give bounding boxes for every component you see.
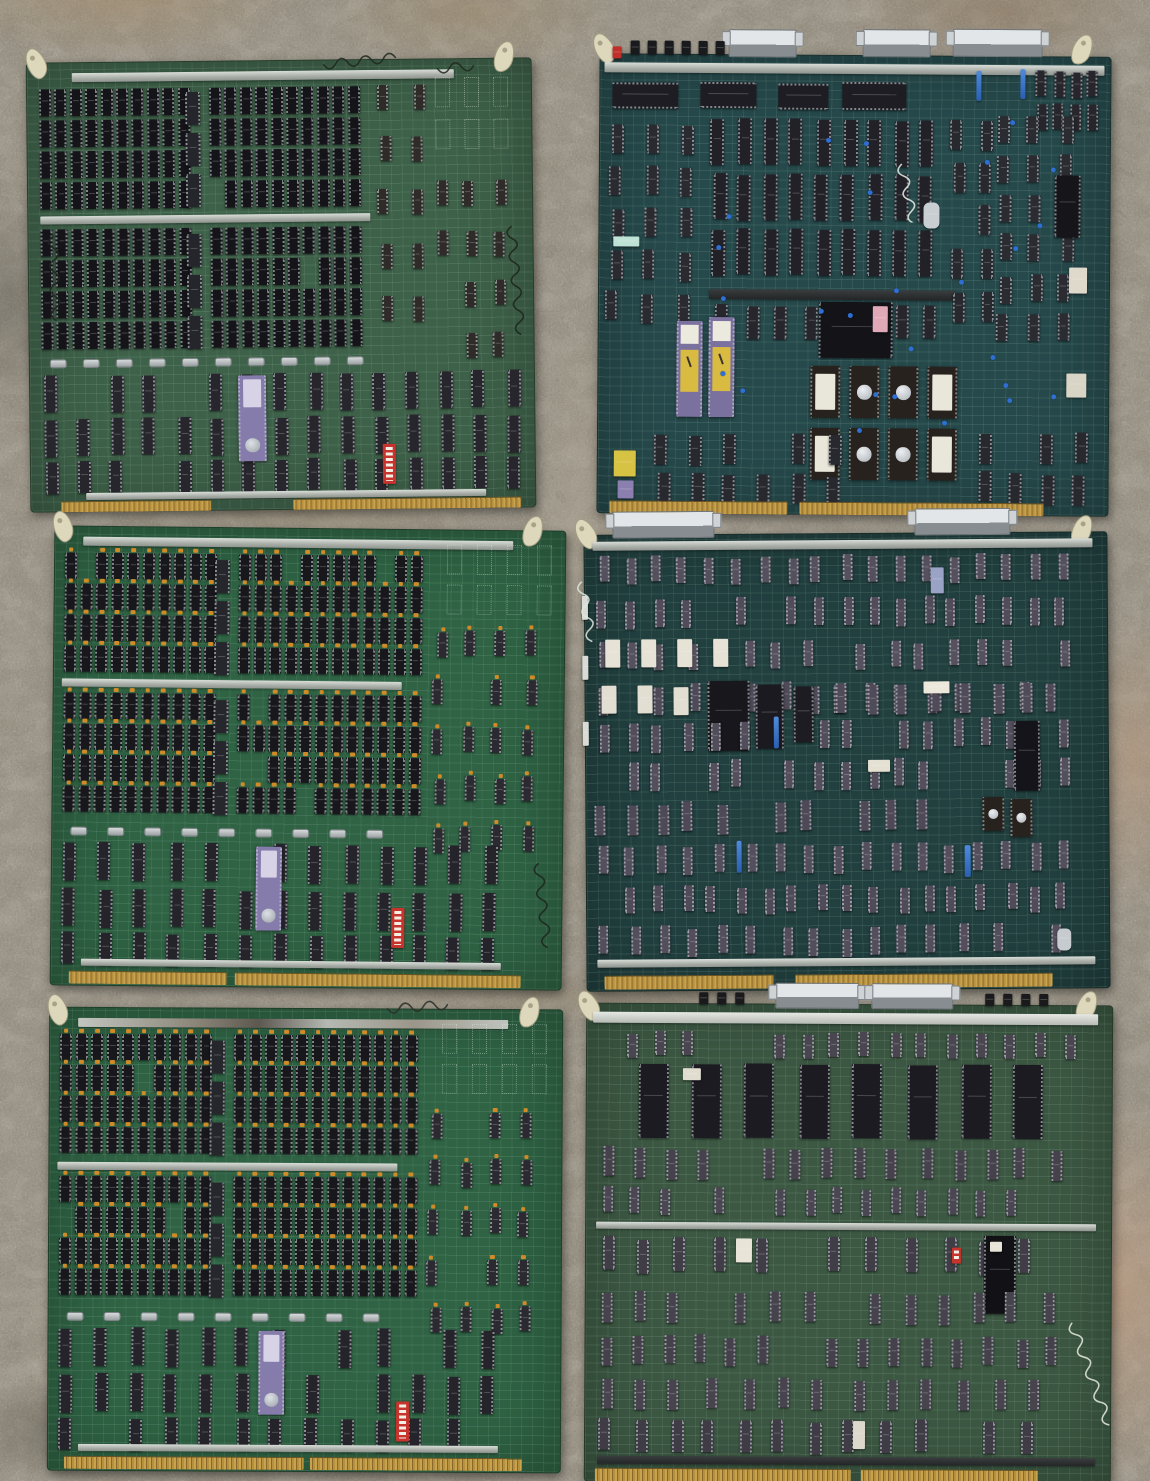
dip-chip xyxy=(612,124,624,153)
dip-chip xyxy=(210,418,223,455)
dip-chip xyxy=(925,925,935,953)
dip-chip xyxy=(738,118,752,164)
dip-chip xyxy=(734,1293,745,1323)
dip-chip xyxy=(55,120,67,147)
gold-edge-connector xyxy=(310,1457,522,1471)
empty-footprint xyxy=(442,1024,457,1054)
dip-chip xyxy=(1041,475,1054,505)
eprom-window-chip xyxy=(888,428,918,480)
dip-chip xyxy=(1000,233,1012,260)
dip-chip xyxy=(1002,597,1012,625)
dip-chip xyxy=(374,1177,386,1203)
dip-chip xyxy=(599,846,609,874)
dip-chip xyxy=(71,229,83,256)
dip-chip xyxy=(317,555,329,581)
dip-chip xyxy=(233,1270,245,1296)
dip-chip xyxy=(308,892,321,930)
dip-chip xyxy=(59,1238,71,1264)
dip-chip xyxy=(131,88,143,115)
blue-bead-capacitor xyxy=(943,421,948,426)
dip-chip xyxy=(300,648,312,674)
dip-chip xyxy=(281,1035,293,1061)
dip-chip xyxy=(916,800,927,830)
dip-chip xyxy=(410,457,423,489)
dip-chip xyxy=(75,1065,87,1091)
dip-chip xyxy=(312,1035,324,1061)
dip-chip xyxy=(107,1034,119,1060)
dip-chip xyxy=(147,150,159,177)
dip-chip xyxy=(165,321,177,348)
dip-chip xyxy=(993,683,1004,713)
dip-chip xyxy=(977,639,987,665)
dip-chip xyxy=(808,928,818,956)
dip-chip xyxy=(209,1223,224,1256)
dip-chip xyxy=(430,1308,441,1333)
dip-chip xyxy=(778,1378,789,1408)
dip-chip xyxy=(91,1034,103,1060)
purple-ceramic-chip xyxy=(258,1331,284,1415)
dip-chip xyxy=(46,462,59,494)
dip-chip xyxy=(255,118,267,145)
dip-chip xyxy=(249,1128,261,1154)
dip-chip xyxy=(814,598,824,626)
dip-chip xyxy=(490,1113,501,1138)
photo-scene xyxy=(0,0,1150,1481)
blue-capacitor xyxy=(737,841,742,873)
dip-chip xyxy=(684,886,694,912)
dip-chip xyxy=(132,119,144,146)
dip-chip xyxy=(64,614,76,640)
dip-chip xyxy=(187,316,202,349)
dip-chip xyxy=(257,289,269,316)
dip-chip xyxy=(303,289,315,316)
dip-chip xyxy=(945,598,955,626)
dip-chip xyxy=(406,1036,418,1062)
dip-chip xyxy=(507,456,520,488)
dip-chip xyxy=(74,1238,86,1264)
dip-chip xyxy=(917,843,927,871)
dip-chip xyxy=(58,1418,71,1450)
dip-chip xyxy=(788,119,802,165)
dip-chip xyxy=(834,846,844,874)
dip-chip xyxy=(377,85,388,110)
dip-chip xyxy=(189,647,201,673)
dip-chip xyxy=(97,842,110,880)
dip-chip xyxy=(312,1097,324,1123)
dip-chip xyxy=(317,586,329,612)
dip-chip xyxy=(163,150,175,177)
dip-chip xyxy=(326,1239,338,1265)
dip-chip xyxy=(187,275,202,308)
dip-chip xyxy=(1014,1148,1025,1178)
dip-chip xyxy=(613,46,622,58)
stiffener-bar xyxy=(709,289,955,301)
dip-chip xyxy=(1026,155,1038,182)
eprom-window-chip xyxy=(810,366,840,418)
dip-chip xyxy=(412,1375,425,1413)
dip-chip xyxy=(919,230,933,276)
dip-chip xyxy=(951,249,963,279)
circuit-board-middle-right-logic xyxy=(583,531,1110,992)
dip-chip xyxy=(347,617,359,643)
dip-chip xyxy=(133,228,145,255)
dip-chip xyxy=(127,553,139,579)
dip-chip xyxy=(280,1239,292,1265)
dip-chip xyxy=(828,1033,839,1057)
dip-chip xyxy=(333,148,345,175)
empty-footprint xyxy=(507,585,522,615)
dip-chip xyxy=(211,290,223,317)
dip-chip xyxy=(604,1146,615,1176)
dip-chip xyxy=(362,758,374,784)
red-dip-switch xyxy=(391,908,404,948)
dip-chip xyxy=(897,925,907,953)
dip-chip xyxy=(636,1420,648,1452)
dip-chip xyxy=(867,230,881,276)
dip-chip xyxy=(854,1381,865,1411)
dip-chip xyxy=(999,195,1011,222)
dip-chip xyxy=(241,227,253,254)
dip-chip xyxy=(783,928,793,956)
dip-chip xyxy=(377,727,389,753)
silver-capacitor xyxy=(50,359,67,368)
dip-chip xyxy=(174,554,186,580)
blue-bead-capacitor xyxy=(1013,246,1018,251)
dip-chip xyxy=(249,1208,261,1234)
chip-window-icon xyxy=(261,909,275,923)
stiffener-bar xyxy=(78,1444,498,1453)
dip-chip xyxy=(343,1097,355,1123)
dip-chip xyxy=(268,757,280,783)
dip-chip xyxy=(210,1081,225,1114)
dip-chip xyxy=(314,788,326,814)
paper-label xyxy=(932,375,952,411)
empty-footprint xyxy=(477,585,492,615)
stiffener-bar xyxy=(597,956,1095,967)
empty-footprint xyxy=(493,77,508,107)
dip-chip xyxy=(404,1271,416,1297)
dip-chip xyxy=(190,554,202,580)
empty-footprint xyxy=(502,1024,517,1054)
dip-chip xyxy=(300,695,312,721)
dip-chip xyxy=(414,85,425,110)
dip-chip xyxy=(317,86,329,113)
dip-chip xyxy=(110,724,122,750)
gold-edge-connector xyxy=(861,1469,1038,1481)
dip-chip xyxy=(301,87,313,114)
dip-chip xyxy=(63,692,75,718)
dip-chip xyxy=(665,41,674,55)
dip-chip xyxy=(106,1127,118,1153)
dip-chip xyxy=(390,1035,402,1061)
dip-chip xyxy=(173,694,185,720)
dip-chip xyxy=(880,1421,892,1453)
dip-chip xyxy=(378,649,390,675)
dip-chip xyxy=(990,1242,1002,1252)
dip-chip xyxy=(272,227,284,254)
dip-chip xyxy=(184,1238,196,1264)
dip-chip xyxy=(62,785,74,811)
dip-chip xyxy=(1065,1035,1076,1059)
dip-chip xyxy=(614,450,636,476)
dip-chip xyxy=(481,1331,494,1369)
dip-chip xyxy=(818,885,828,911)
dip-chip xyxy=(87,260,99,287)
dip-chip xyxy=(1075,433,1088,463)
dip-chip xyxy=(394,618,406,644)
dip-chip xyxy=(843,597,853,625)
dip-chip xyxy=(1002,640,1012,666)
dip-chip xyxy=(149,321,161,348)
dip-chip xyxy=(1007,883,1017,909)
dip-chip xyxy=(317,117,329,144)
dip-chip xyxy=(931,567,944,593)
dip-chip xyxy=(156,755,168,781)
dip-chip xyxy=(133,259,145,286)
dip-chip xyxy=(405,1209,417,1235)
quartz-window-icon xyxy=(895,447,910,462)
dip-chip xyxy=(70,89,82,116)
dip-chip xyxy=(1057,274,1069,301)
dip-chip xyxy=(746,306,759,339)
dip-chip xyxy=(96,584,108,610)
dip-chip xyxy=(1054,597,1064,625)
dip-chip xyxy=(405,371,418,408)
dip-chip xyxy=(771,1419,783,1451)
dip-chip xyxy=(758,1336,769,1364)
dip-chip xyxy=(302,149,314,176)
dip-chip xyxy=(59,1127,71,1153)
dip-chip xyxy=(473,414,486,451)
chip-label xyxy=(243,379,261,407)
dip-chip xyxy=(55,151,67,178)
dip-chip xyxy=(280,1128,292,1154)
dip-chip xyxy=(860,801,871,831)
dip-chip xyxy=(842,884,852,910)
dip-chip xyxy=(867,556,877,582)
dip-chip xyxy=(634,1291,645,1321)
dip-chip xyxy=(295,1239,307,1265)
dip-chip xyxy=(280,1208,292,1234)
silver-capacitor xyxy=(329,829,346,838)
dip-chip xyxy=(311,1270,323,1296)
dip-chip xyxy=(996,1380,1007,1410)
dip-chip xyxy=(378,696,390,722)
dip-chip xyxy=(257,258,269,285)
dip-chip xyxy=(103,291,115,318)
dip-chip xyxy=(1017,1339,1028,1367)
dip-chip xyxy=(362,696,374,722)
dip-chip xyxy=(59,1176,71,1202)
dip-chip xyxy=(613,236,639,246)
dip-chip xyxy=(88,322,100,349)
chip-window-icon xyxy=(264,1393,278,1407)
dip-chip xyxy=(163,181,175,208)
dip-chip xyxy=(236,787,248,813)
dip-chip xyxy=(1028,1380,1039,1410)
dip-chip xyxy=(395,587,407,613)
dip-chip xyxy=(363,587,375,613)
dip-chip xyxy=(650,763,660,791)
dip-chip xyxy=(691,473,704,503)
dip-chip xyxy=(125,786,137,812)
dip-chip xyxy=(346,757,358,783)
dip-chip xyxy=(657,845,667,873)
dip-chip xyxy=(1039,994,1048,1006)
dip-chip xyxy=(869,174,883,220)
dip-chip xyxy=(65,583,77,609)
dip-chip xyxy=(792,474,805,504)
dip-chip xyxy=(106,1269,118,1295)
dip-chip xyxy=(296,1097,308,1123)
dip-chip xyxy=(348,555,360,581)
dip-chip xyxy=(210,228,222,255)
red-dip-switch xyxy=(396,1401,409,1441)
dip-chip xyxy=(939,1296,950,1326)
dip-chip xyxy=(899,720,909,748)
dip-chip xyxy=(233,1128,245,1154)
dip-chip xyxy=(71,182,83,209)
circuit-board-bottom-left-memory xyxy=(47,1007,563,1474)
dip-chip xyxy=(811,1379,822,1409)
dip-chip xyxy=(140,786,152,812)
dip-chip xyxy=(158,615,170,641)
dip-chip xyxy=(74,1269,86,1295)
dip-chip xyxy=(985,994,994,1006)
dip-chip xyxy=(862,842,872,870)
dip-chip xyxy=(72,322,84,349)
dip-chip xyxy=(442,415,455,452)
dip-chip xyxy=(683,1068,701,1080)
dip-chip xyxy=(408,789,420,815)
dip-chip xyxy=(57,322,69,349)
dip-chip xyxy=(717,805,728,835)
dip-chip xyxy=(76,419,89,456)
dip-chip xyxy=(603,1235,615,1269)
empty-footprint xyxy=(532,1024,547,1054)
dip-chip xyxy=(75,1207,87,1233)
dip-chip xyxy=(519,1307,530,1332)
dip-chip xyxy=(377,189,388,214)
silver-capacitor xyxy=(215,1313,232,1322)
dip-chip xyxy=(147,119,159,146)
dip-chip xyxy=(61,887,74,925)
dip-chip xyxy=(426,1260,437,1285)
dip-chip xyxy=(491,680,502,705)
dip-chip xyxy=(641,294,653,323)
dip-chip xyxy=(296,1128,308,1154)
dip-chip xyxy=(147,88,159,115)
dip-chip xyxy=(409,696,421,722)
dip-chip xyxy=(522,730,533,755)
dip-chip xyxy=(736,1238,752,1262)
dip-chip xyxy=(374,1035,386,1061)
dip-chip xyxy=(184,1127,196,1153)
dip-chip xyxy=(348,148,360,175)
empty-footprint xyxy=(493,119,508,149)
dip-chip xyxy=(131,1327,144,1365)
dip-chip xyxy=(496,180,507,205)
dip-chip xyxy=(75,1096,87,1122)
dip-chip xyxy=(126,646,138,672)
dip-chip xyxy=(334,257,346,284)
dip-chip xyxy=(413,297,424,322)
dip-chip xyxy=(981,292,993,322)
dip-chip xyxy=(331,648,343,674)
dip-chip xyxy=(287,180,299,207)
dip-chip xyxy=(525,631,536,656)
dip-chip xyxy=(950,120,962,150)
dip-chip xyxy=(343,1035,355,1061)
dip-chip xyxy=(896,306,909,339)
dip-chip xyxy=(1014,721,1040,791)
dip-chip xyxy=(493,332,504,357)
dip-chip xyxy=(715,844,725,872)
dip-chip xyxy=(268,788,280,814)
dip-chip xyxy=(214,642,229,675)
purple-eprom xyxy=(676,321,703,417)
dip-chip xyxy=(1052,1151,1063,1181)
dip-chip xyxy=(186,234,201,267)
dip-chip xyxy=(56,229,68,256)
dip-chip xyxy=(301,555,313,581)
stiffener-bar xyxy=(592,538,1092,550)
dip-chip xyxy=(771,643,781,669)
dip-chip xyxy=(381,244,392,269)
dip-chip xyxy=(169,1127,181,1153)
dip-chip xyxy=(215,560,230,593)
dip-chip xyxy=(840,175,854,221)
dip-chip xyxy=(295,1208,307,1234)
dip-chip xyxy=(256,180,268,207)
dip-chip xyxy=(631,40,640,54)
dip-chip xyxy=(249,1177,261,1203)
dip-chip xyxy=(682,126,694,155)
dip-chip xyxy=(805,306,818,339)
blue-bead-capacitor xyxy=(721,296,726,301)
dip-chip xyxy=(59,1269,71,1295)
dip-chip xyxy=(761,556,771,582)
blue-bead-capacitor xyxy=(1037,224,1042,229)
dip-chip xyxy=(449,893,462,931)
blue-bead-capacitor xyxy=(908,346,913,351)
eprom-yellow-label xyxy=(712,347,730,391)
dip-chip xyxy=(94,724,106,750)
dip-chip xyxy=(731,558,741,584)
dip-chip xyxy=(1054,175,1080,237)
dip-chip xyxy=(271,87,283,114)
dip-chip xyxy=(288,320,300,347)
dip-chip xyxy=(723,434,736,464)
dip-chip xyxy=(254,585,266,611)
dip-chip xyxy=(618,480,634,498)
dip-chip xyxy=(627,1034,638,1058)
dip-chip xyxy=(106,1176,118,1202)
dip-chip xyxy=(979,434,992,464)
dip-chip xyxy=(310,373,323,410)
dip-chip xyxy=(374,1066,386,1092)
dip-chip xyxy=(187,787,199,813)
dip-chip xyxy=(340,373,353,410)
dip-chip xyxy=(211,259,223,286)
silver-capacitor xyxy=(326,1313,343,1322)
dip-chip xyxy=(410,587,422,613)
dip-chip xyxy=(234,1035,246,1061)
dip-chip xyxy=(637,1240,649,1274)
dip-chip xyxy=(185,1034,197,1060)
dip-chip xyxy=(463,727,474,752)
dip-chip xyxy=(711,230,725,276)
